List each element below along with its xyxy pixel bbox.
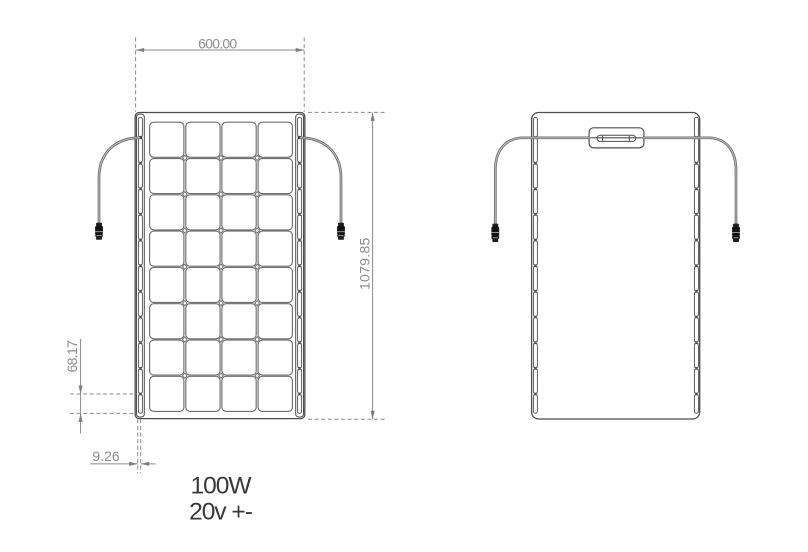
svg-text:1079.85: 1079.85 [356, 237, 372, 290]
svg-text:100W: 100W [190, 473, 252, 500]
svg-text:9.26: 9.26 [92, 448, 119, 464]
svg-text:68.17: 68.17 [64, 340, 80, 373]
svg-text:600.00: 600.00 [198, 36, 237, 52]
svg-text:20v +-: 20v +- [189, 498, 253, 525]
